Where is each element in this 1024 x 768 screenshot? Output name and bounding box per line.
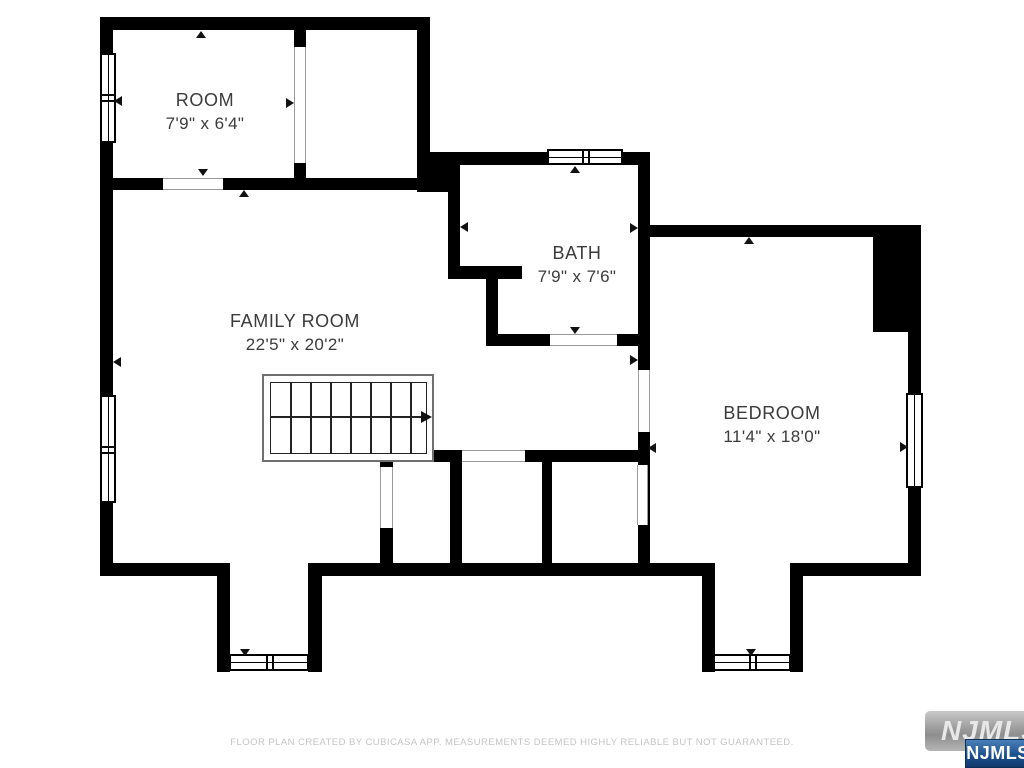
window-icon <box>713 654 791 671</box>
door-arrow-icon <box>744 237 754 244</box>
room-label-family-room: FAMILY ROOM 22'5" x 20'2" <box>230 311 360 355</box>
room-name: FAMILY ROOM <box>230 311 360 332</box>
stair-tread-line <box>350 382 352 454</box>
window-icon <box>229 654 309 671</box>
staircase-treads <box>270 382 427 454</box>
door-arrow-icon <box>648 443 656 453</box>
stair-direction-line <box>270 416 421 418</box>
door-arrow-icon <box>746 649 756 656</box>
room-dimensions: 22'5" x 20'2" <box>230 335 360 355</box>
stair-tread-line <box>390 382 392 454</box>
door-opening <box>638 370 650 432</box>
door-arrow-icon <box>198 169 208 176</box>
room-dimensions: 7'9" x 6'4" <box>166 114 245 134</box>
stair-tread-line <box>410 382 412 454</box>
door-opening <box>550 334 617 346</box>
door-arrow-icon <box>460 222 468 232</box>
wall <box>100 178 460 190</box>
wall <box>790 563 803 672</box>
wall <box>450 453 462 576</box>
footer-disclaimer: FLOOR PLAN CREATED BY CUBICASA APP. MEAS… <box>230 737 793 748</box>
window-icon <box>100 395 116 503</box>
wall <box>100 17 430 30</box>
stair-tread-line <box>370 382 372 454</box>
door-arrow-icon <box>570 166 580 173</box>
door-opening <box>294 47 306 163</box>
door-arrow-icon <box>113 357 121 367</box>
room-dimensions: 7'9" x 7'6" <box>538 267 617 287</box>
door-opening <box>462 450 525 462</box>
door-opening <box>380 467 393 528</box>
wall <box>308 563 322 672</box>
window-icon <box>547 149 623 165</box>
floor-plan-canvas: ROOM 7'9" x 6'4" BATH 7'9" x 7'6" FAMILY… <box>0 0 1024 768</box>
door-arrow-icon <box>286 98 294 108</box>
room-dimensions: 11'4" x 18'0" <box>723 427 820 447</box>
stair-direction-arrow-icon <box>421 411 432 423</box>
bay-opening <box>715 563 790 576</box>
room-name: ROOM <box>166 90 245 111</box>
door-arrow-icon <box>114 96 122 106</box>
room-label-room: ROOM 7'9" x 6'4" <box>166 90 245 134</box>
room-label-bedroom: BEDROOM 11'4" x 18'0" <box>723 403 820 447</box>
wall <box>542 453 552 576</box>
bay-opening <box>230 563 308 576</box>
door-arrow-icon <box>630 223 638 233</box>
stair-tread-line <box>330 382 332 454</box>
njmls-badge: NJMLS <box>965 739 1024 768</box>
door-arrow-icon <box>240 649 250 656</box>
door-arrow-icon <box>570 327 580 334</box>
door-arrow-icon <box>196 31 206 38</box>
door-arrow-icon <box>630 355 638 365</box>
window-icon <box>906 393 923 488</box>
room-name: BEDROOM <box>723 403 820 424</box>
stair-tread-line <box>310 382 312 454</box>
wall <box>448 266 522 279</box>
wall <box>448 165 460 279</box>
door-opening <box>163 178 223 190</box>
door-opening <box>637 465 648 525</box>
door-arrow-icon <box>239 190 249 197</box>
room-name: BATH <box>538 243 617 264</box>
door-arrow-icon <box>900 442 908 452</box>
stair-tread-line <box>290 382 292 454</box>
room-label-bath: BATH 7'9" x 7'6" <box>538 243 617 287</box>
